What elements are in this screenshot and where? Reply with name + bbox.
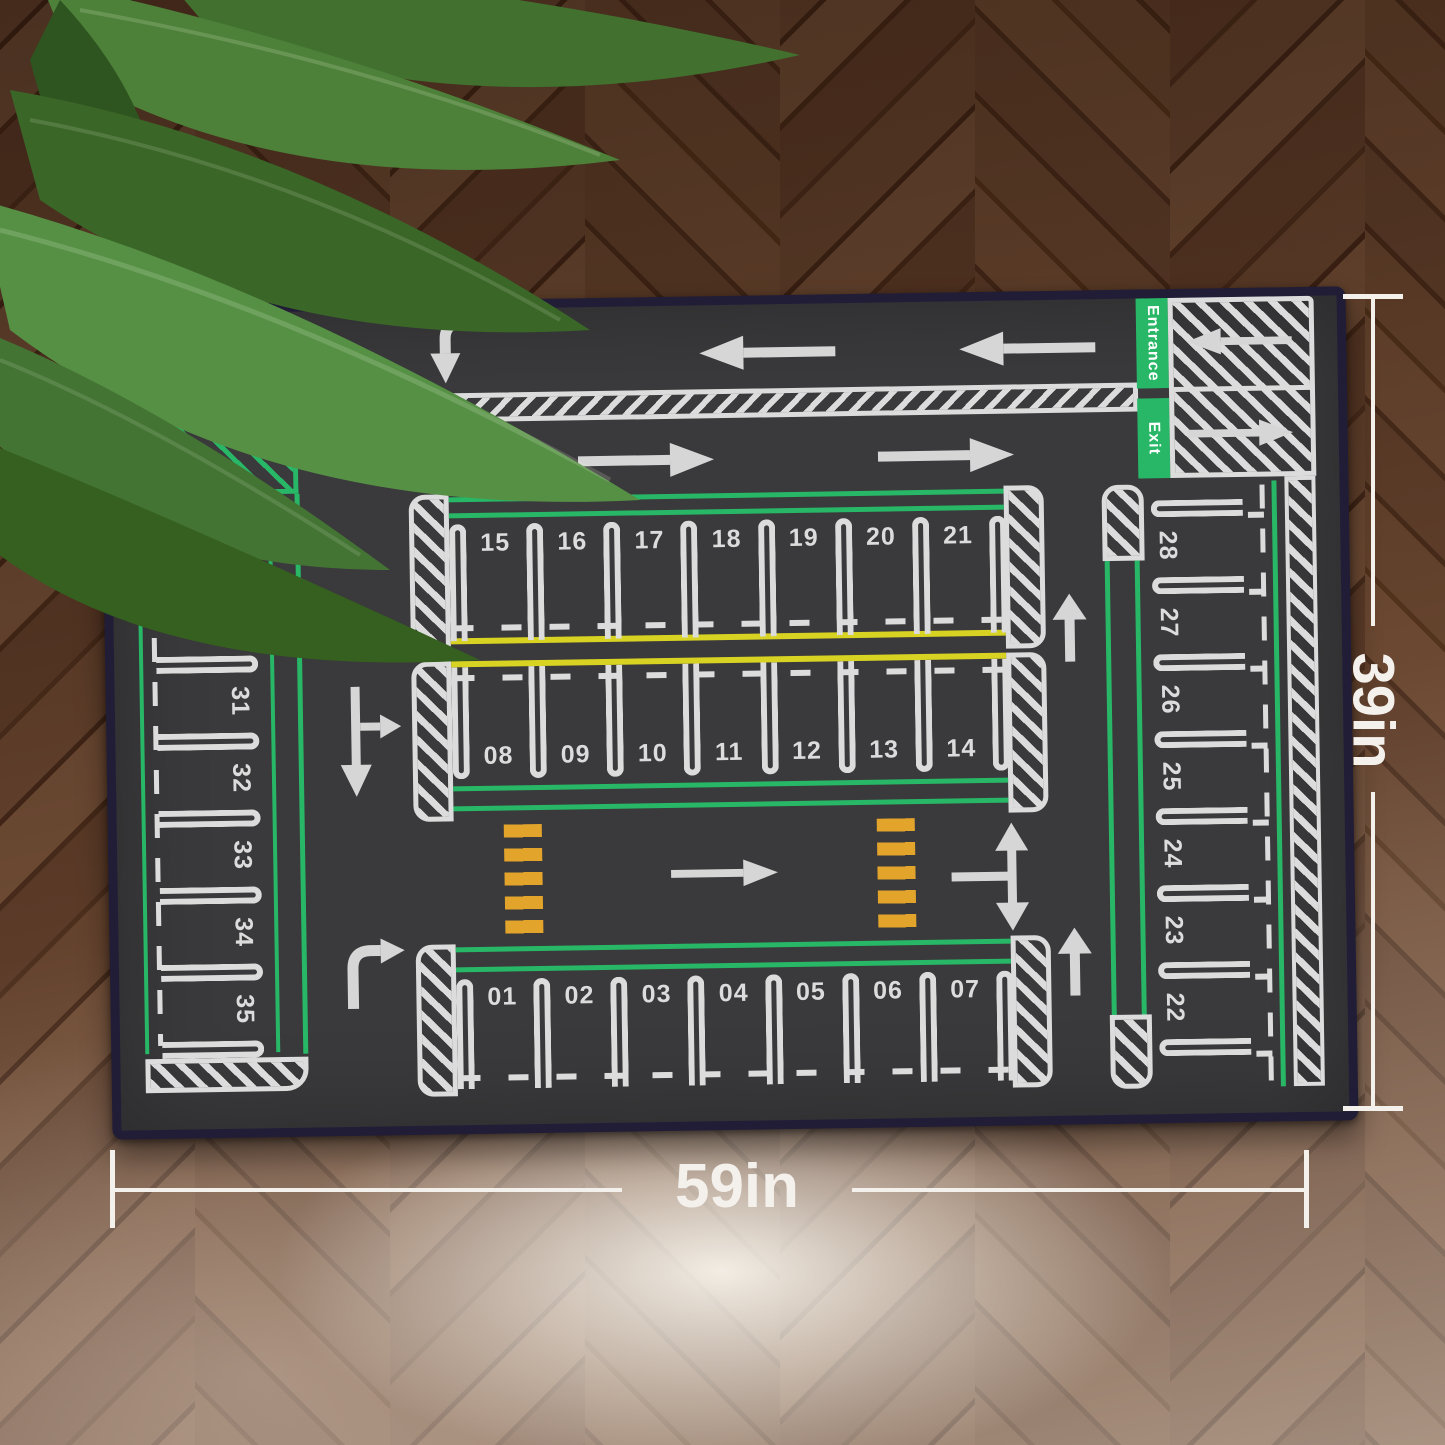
plant-leaves — [0, 0, 820, 690]
stall-divider — [456, 979, 475, 1089]
stall-divider — [835, 518, 854, 635]
row-green-line — [453, 798, 1008, 812]
stall-divider — [157, 732, 259, 751]
stall-number: 02 — [564, 983, 594, 1008]
stall-number: 12 — [792, 739, 822, 764]
stall-number: 10 — [638, 741, 668, 766]
stall-number: 28 — [1155, 530, 1180, 560]
exit-arrow-right-icon — [1186, 417, 1294, 449]
height-dim-line-segment — [1371, 792, 1375, 1110]
stall-number: 14 — [946, 736, 976, 761]
row-end-block — [1006, 652, 1049, 813]
turn-right-arrow-icon — [340, 936, 413, 1011]
stall-divider — [991, 659, 1010, 771]
row-green-line — [456, 939, 1011, 953]
width-dim-cap-right — [1304, 1150, 1309, 1228]
stall-end-dash — [1255, 974, 1271, 980]
stall-number: 31 — [227, 686, 252, 716]
stall-number: 04 — [719, 981, 749, 1006]
stall-divider — [1154, 730, 1246, 748]
stall-number: 07 — [950, 977, 980, 1002]
stall-divider — [1157, 884, 1249, 902]
stall-divider — [837, 661, 856, 773]
height-dim-cap-top — [1343, 294, 1403, 299]
stall-end-dash — [1248, 512, 1264, 518]
crosswalk-vertical — [504, 824, 544, 937]
stall-divider — [1152, 576, 1244, 594]
stall-number: 32 — [228, 763, 253, 793]
lane-divider-green — [1105, 561, 1117, 1017]
stall-number: 13 — [869, 737, 899, 762]
lane-arrow-left-icon — [957, 329, 1098, 367]
row-green-line — [456, 959, 1011, 973]
stall-number: 20 — [866, 524, 896, 549]
stall-number: 33 — [229, 840, 254, 870]
stall-number: 03 — [641, 982, 671, 1007]
right-column-dashed-line — [1259, 485, 1273, 1087]
lane-island-hatched — [1110, 1014, 1153, 1089]
width-dim-line-segment — [852, 1188, 1308, 1192]
height-dim-cap-bottom — [1343, 1106, 1403, 1111]
stall-divider — [610, 977, 629, 1087]
height-dim-line-segment — [1371, 296, 1375, 626]
branch-arrow-up-down-icon — [945, 820, 1033, 933]
lane-arrow-up-icon — [1051, 591, 1088, 664]
stall-number: 22 — [1162, 992, 1187, 1022]
width-dim-line-segment — [112, 1188, 622, 1192]
stall-divider — [765, 974, 784, 1084]
straight-or-right-arrow-icon — [339, 684, 407, 799]
stall-number: 08 — [483, 743, 513, 768]
row-end-block — [1003, 485, 1046, 649]
stall-number: 09 — [561, 742, 591, 767]
height-dim-label: 39in — [1338, 640, 1408, 780]
stall-divider — [996, 971, 1015, 1081]
stall-divider — [160, 886, 262, 905]
stall-number: 21 — [943, 523, 973, 548]
stall-end-dash — [1254, 897, 1270, 903]
lane-arrow-up-icon — [1056, 925, 1093, 998]
stall-divider — [912, 517, 931, 634]
row-green-line — [453, 778, 1008, 792]
stall-number: 27 — [1156, 607, 1181, 637]
stall-number: 11 — [715, 740, 744, 765]
stall-divider — [1153, 653, 1245, 671]
stall-end-dash — [1250, 666, 1266, 672]
stall-end-dash — [1256, 1051, 1272, 1057]
stall-divider — [1158, 961, 1250, 979]
stall-end-dash — [1253, 820, 1269, 826]
lane-arrow-right-icon — [669, 855, 780, 891]
stall-number: 06 — [873, 978, 903, 1003]
lane-divider-green — [1135, 561, 1147, 1017]
stall-divider — [158, 809, 260, 828]
stall-divider — [161, 963, 263, 982]
width-dim-label: 59in — [622, 1148, 852, 1224]
stall-divider — [1156, 807, 1248, 825]
stall-divider — [1159, 1038, 1251, 1056]
right-column-green-line — [1271, 480, 1286, 1086]
stall-divider — [919, 972, 938, 1082]
row-end-block — [416, 944, 458, 1097]
stall-divider — [842, 973, 861, 1083]
lane-island-hatched — [1101, 484, 1144, 561]
stall-number: 25 — [1158, 761, 1183, 791]
exit-bar: Exit — [1137, 398, 1170, 478]
stall-divider — [688, 975, 707, 1085]
product-photo-scene: Entrance Exit — [0, 0, 1445, 1445]
stall-end-dash — [1249, 589, 1265, 595]
stall-number: 34 — [231, 917, 256, 947]
entrance-bar: Entrance — [1136, 298, 1169, 388]
stall-number: 05 — [796, 980, 826, 1005]
stall-divider — [989, 516, 1008, 633]
lane-arrow-right-icon — [876, 436, 1017, 474]
stall-divider — [914, 660, 933, 772]
right-edge-hatched-band — [1284, 476, 1325, 1086]
stall-end-dash — [1252, 743, 1268, 749]
stall-divider — [162, 1040, 264, 1059]
entrance-arrow-left-icon — [1185, 325, 1293, 357]
entrance-exit-zone-hatched — [1168, 296, 1317, 478]
left-end-hatched-strip — [145, 1057, 309, 1094]
stall-number: 01 — [487, 984, 517, 1009]
stall-number: 23 — [1161, 915, 1186, 945]
width-dim-cap-left — [110, 1150, 115, 1228]
stall-number: 26 — [1157, 684, 1182, 714]
row-end-block — [1011, 935, 1053, 1088]
entrance-label: Entrance — [1143, 305, 1162, 382]
stall-divider — [533, 978, 552, 1088]
stall-number: 35 — [232, 994, 257, 1024]
stall-number: 24 — [1159, 838, 1184, 868]
exit-label: Exit — [1144, 421, 1163, 455]
stall-divider — [1151, 499, 1243, 517]
crosswalk-vertical — [877, 818, 917, 931]
zone-divider-line — [1174, 385, 1310, 392]
